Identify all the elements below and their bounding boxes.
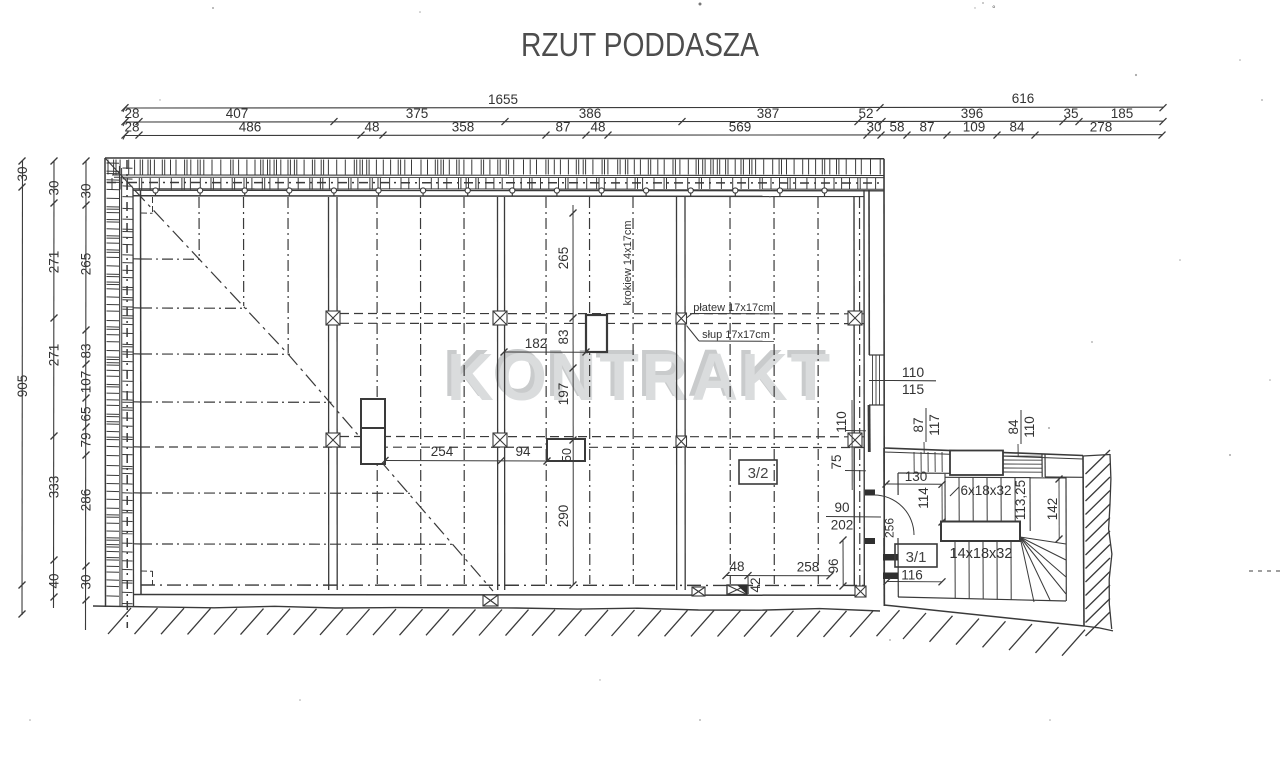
svg-text:84: 84 [1009, 120, 1025, 135]
svg-text:905: 905 [15, 375, 30, 398]
svg-text:87: 87 [911, 417, 926, 432]
svg-text:83: 83 [79, 343, 94, 358]
svg-text:28: 28 [124, 120, 139, 135]
svg-text:30: 30 [79, 574, 94, 589]
svg-text:48: 48 [364, 120, 379, 135]
svg-text:197: 197 [556, 383, 571, 406]
svg-text:79: 79 [79, 432, 94, 447]
svg-text:616: 616 [1012, 91, 1035, 106]
svg-text:254: 254 [431, 444, 454, 459]
svg-text:130: 130 [905, 469, 928, 484]
svg-text:14x18x32: 14x18x32 [950, 546, 1013, 562]
svg-text:387: 387 [757, 106, 780, 121]
svg-text:96: 96 [826, 558, 841, 573]
svg-text:182: 182 [525, 336, 548, 351]
svg-text:569: 569 [729, 120, 752, 135]
svg-text:358: 358 [452, 120, 475, 135]
svg-text:3/2: 3/2 [748, 465, 769, 482]
svg-text:48: 48 [590, 120, 605, 135]
svg-text:48: 48 [729, 559, 744, 574]
svg-text:94: 94 [515, 444, 531, 459]
svg-text:40: 40 [47, 573, 62, 588]
svg-text:75: 75 [829, 454, 844, 469]
svg-text:110: 110 [834, 411, 849, 433]
svg-text:278: 278 [1090, 120, 1113, 135]
svg-text:185: 185 [1111, 106, 1134, 121]
svg-text:65: 65 [79, 406, 94, 421]
svg-text:krokiew 14x17cm: krokiew 14x17cm [622, 221, 634, 306]
svg-text:30: 30 [15, 166, 30, 181]
svg-text:35: 35 [1063, 106, 1078, 121]
svg-text:84: 84 [1006, 419, 1021, 435]
svg-text:286: 286 [79, 489, 94, 512]
svg-text:83: 83 [556, 329, 571, 344]
svg-text:256: 256 [883, 518, 897, 538]
svg-text:265: 265 [79, 253, 94, 276]
svg-text:265: 265 [556, 247, 571, 270]
svg-text:słup 17x17cm: słup 17x17cm [702, 329, 770, 341]
svg-text:30: 30 [866, 120, 881, 135]
svg-text:202: 202 [831, 518, 854, 533]
svg-text:116: 116 [901, 568, 923, 583]
svg-text:115: 115 [902, 381, 925, 397]
svg-text:107: 107 [79, 371, 94, 394]
svg-text:109: 109 [963, 120, 986, 135]
svg-text:87: 87 [919, 120, 934, 135]
svg-text:258: 258 [797, 560, 820, 575]
svg-text:3/1: 3/1 [906, 549, 927, 566]
svg-text:°: ° [992, 4, 996, 14]
svg-text:110: 110 [1022, 416, 1037, 438]
svg-text:30: 30 [79, 183, 94, 198]
svg-text:142: 142 [1045, 498, 1060, 521]
svg-text:58: 58 [889, 120, 904, 135]
svg-text:117: 117 [927, 414, 942, 436]
svg-text:110: 110 [902, 364, 925, 380]
svg-text:RZUT PODDASZA: RZUT PODDASZA [521, 26, 759, 63]
svg-text:271: 271 [47, 344, 62, 367]
svg-text:płatew 17x17cm: płatew 17x17cm [693, 302, 773, 314]
svg-text:50: 50 [560, 448, 574, 462]
svg-text:271: 271 [47, 251, 62, 274]
svg-text:87: 87 [555, 120, 570, 135]
svg-text:113,25: 113,25 [1013, 480, 1028, 520]
svg-text:90: 90 [834, 500, 849, 515]
svg-text:30: 30 [47, 180, 62, 195]
svg-text:114: 114 [916, 487, 931, 509]
svg-text:486: 486 [239, 120, 262, 135]
svg-text:6x18x32: 6x18x32 [960, 483, 1011, 498]
svg-text:42: 42 [748, 577, 763, 592]
svg-text:333: 333 [47, 476, 62, 499]
svg-text:1655: 1655 [488, 92, 518, 107]
svg-text:375: 375 [406, 106, 429, 121]
svg-text:290: 290 [556, 505, 571, 528]
